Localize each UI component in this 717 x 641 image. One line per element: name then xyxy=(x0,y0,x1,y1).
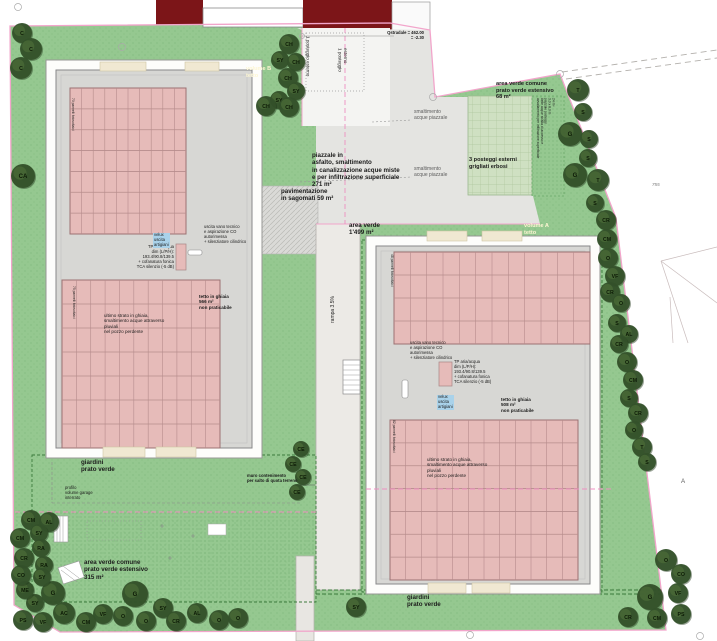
svg-text:RA: RA xyxy=(37,546,45,552)
svg-text:CR: CR xyxy=(20,556,28,562)
ramp xyxy=(316,224,360,590)
svg-text:O: O xyxy=(236,616,240,622)
svg-text:G: G xyxy=(133,592,138,598)
svg-text:CM: CM xyxy=(27,518,35,524)
svg-text:O: O xyxy=(619,301,623,307)
neighbor-building-right xyxy=(303,0,392,32)
site-plan-drawing: CCCCACHSYCHCHSYSYCHCHTSGSSGTSCRCMOVFCROS… xyxy=(0,0,717,641)
svg-text:CH: CH xyxy=(285,105,293,111)
tp-unit-b xyxy=(176,244,186,270)
svg-text:CH: CH xyxy=(284,76,292,82)
svg-text:AL: AL xyxy=(194,611,202,617)
svg-text:C: C xyxy=(19,66,23,72)
svg-text:CR: CR xyxy=(172,619,180,625)
svg-text:CR: CR xyxy=(615,342,623,348)
tree-co: CO xyxy=(671,564,692,585)
svg-text:S: S xyxy=(587,137,591,143)
avvallamento-texture xyxy=(532,96,564,196)
tree-ps: PS xyxy=(671,604,692,625)
svg-text:CM: CM xyxy=(653,616,661,622)
svg-text:S: S xyxy=(593,201,597,207)
panel-array xyxy=(70,88,186,234)
svg-text:O: O xyxy=(664,558,668,564)
svg-text:O: O xyxy=(121,614,125,620)
svg-text:SY: SY xyxy=(353,605,360,611)
svg-text:S: S xyxy=(615,321,619,327)
neighbor-roof-outline xyxy=(661,247,717,343)
svg-text:SY: SY xyxy=(160,606,167,612)
panel-array xyxy=(390,420,578,580)
svg-text:O: O xyxy=(144,619,148,625)
svg-text:CE: CE xyxy=(293,490,301,496)
svg-text:CE: CE xyxy=(297,447,305,453)
svg-text:S: S xyxy=(645,460,649,466)
svg-text:O: O xyxy=(625,360,629,366)
svg-text:O: O xyxy=(606,256,610,262)
svg-text:O: O xyxy=(217,618,221,624)
svg-text:CH: CH xyxy=(292,60,300,66)
svg-text:CH: CH xyxy=(285,42,293,48)
svg-text:VF: VF xyxy=(40,620,47,626)
svg-text:G: G xyxy=(648,595,653,601)
grigliato-grid xyxy=(468,96,532,195)
svg-text:PS: PS xyxy=(20,618,27,624)
svg-text:VF: VF xyxy=(675,591,682,597)
svg-text:CR: CR xyxy=(602,218,610,224)
svg-text:AL: AL xyxy=(46,520,54,526)
svg-text:CR: CR xyxy=(606,290,614,296)
svg-text:CA: CA xyxy=(19,174,28,180)
svg-text:CR: CR xyxy=(634,411,642,417)
svg-text:S: S xyxy=(586,156,590,162)
svg-text:G: G xyxy=(568,132,573,138)
neighbor-building-left xyxy=(156,0,203,25)
svg-text:VF: VF xyxy=(612,274,619,280)
tree-t: T xyxy=(567,79,590,102)
silencer-a xyxy=(402,380,408,398)
svg-text:SY: SY xyxy=(32,601,39,607)
svg-text:CO: CO xyxy=(677,572,685,578)
svg-text:CO: CO xyxy=(17,573,25,579)
svg-text:CM: CM xyxy=(16,536,24,542)
svg-text:SY: SY xyxy=(277,58,284,64)
svg-text:AL: AL xyxy=(626,332,634,338)
svg-text:SY: SY xyxy=(293,89,300,95)
svg-text:O: O xyxy=(632,428,636,434)
svg-text:CH: CH xyxy=(262,104,270,110)
svg-text:CM: CM xyxy=(603,237,611,243)
tp-unit-a xyxy=(439,362,452,386)
svg-text:SY: SY xyxy=(39,575,46,581)
svg-text:SY: SY xyxy=(36,531,43,537)
site-plan: CCCCACHSYCHCHSYSYCHCHTSGSSGTSCRCMOVFCROS… xyxy=(0,0,717,641)
svg-text:G: G xyxy=(51,591,56,597)
panel-array xyxy=(62,280,220,448)
silencer-b xyxy=(188,250,202,255)
svg-text:C: C xyxy=(29,47,33,53)
svg-text:S: S xyxy=(627,396,631,402)
svg-text:VF: VF xyxy=(100,612,107,618)
paving-hatch xyxy=(256,186,318,254)
svg-text:PS: PS xyxy=(678,612,685,618)
posteggio-esterno-zone xyxy=(302,28,390,126)
svg-text:C: C xyxy=(20,31,24,37)
svg-text:CE: CE xyxy=(289,462,297,468)
footpath-bottom xyxy=(296,556,314,641)
neighbor-annex xyxy=(392,2,430,32)
svg-text:S: S xyxy=(581,110,585,116)
svg-text:CM: CM xyxy=(629,378,637,384)
svg-text:CE: CE xyxy=(299,475,307,481)
svg-text:CM: CM xyxy=(82,620,90,626)
svg-text:AC: AC xyxy=(60,611,68,617)
tree-vf: VF xyxy=(668,583,689,604)
svg-text:CR: CR xyxy=(624,615,632,621)
svg-text:G: G xyxy=(573,173,578,179)
panel-array xyxy=(394,252,590,344)
svg-text:ME: ME xyxy=(21,588,29,594)
